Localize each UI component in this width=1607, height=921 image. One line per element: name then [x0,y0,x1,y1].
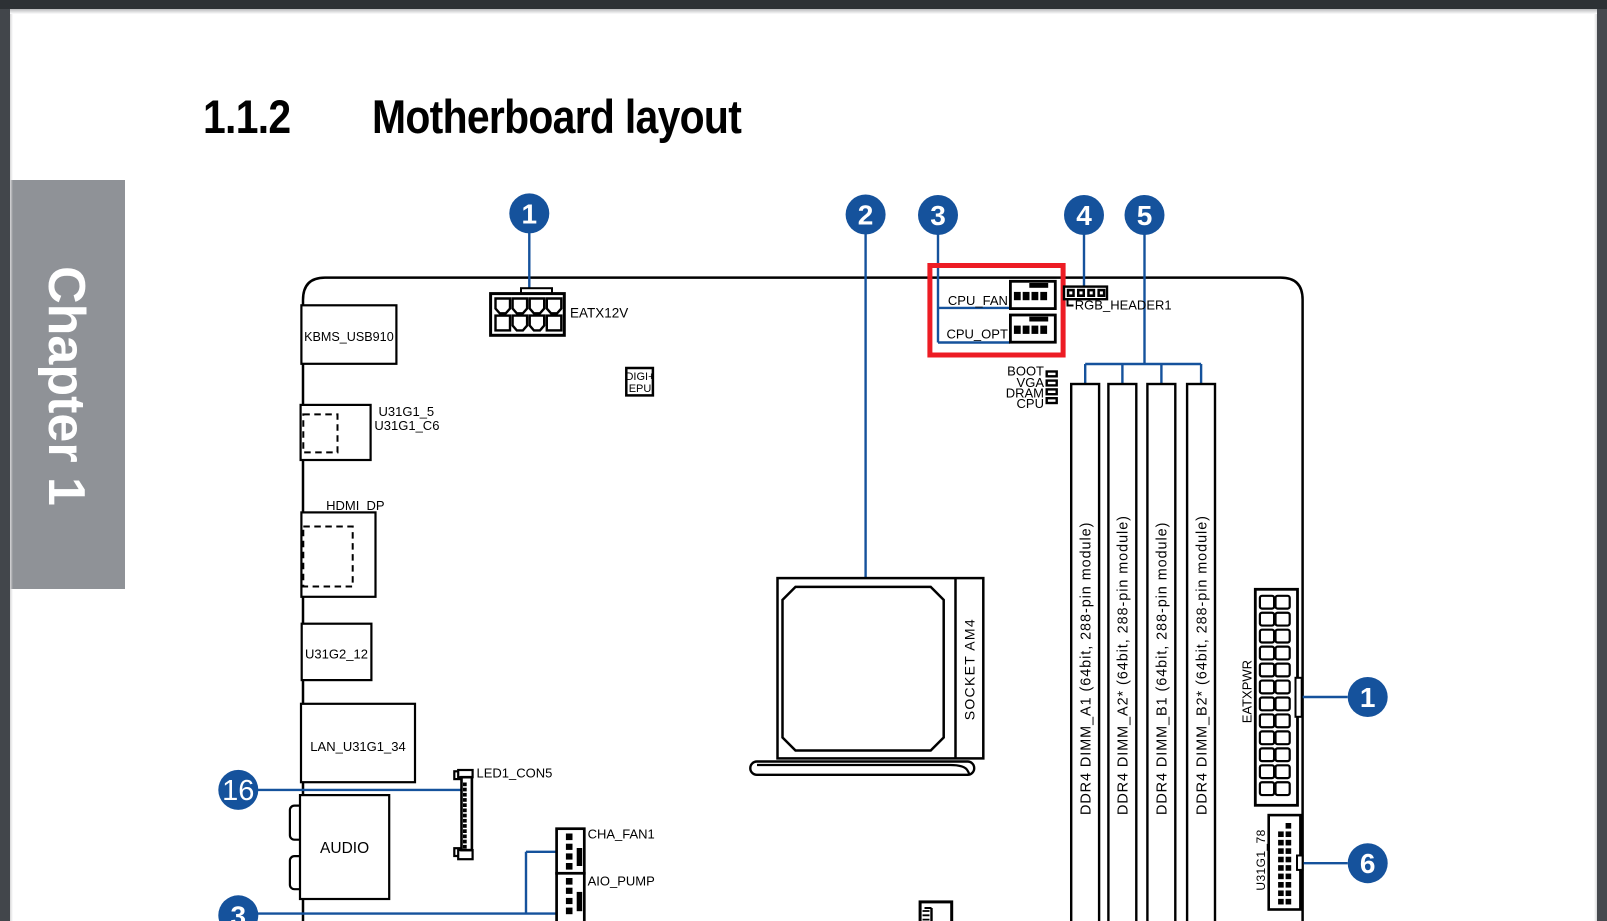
svg-text:RGB_HEADER1: RGB_HEADER1 [1075,298,1172,313]
svg-text:AIO_PUMP: AIO_PUMP [588,874,655,889]
svg-text:CHA_FAN1: CHA_FAN1 [588,827,655,842]
svg-text:2: 2 [858,200,874,231]
svg-text:DDR4 DIMM_A1 (64bit, 288-pin m: DDR4 DIMM_A1 (64bit, 288-pin module) [1079,522,1095,815]
svg-text:1: 1 [522,198,538,229]
svg-text:4: 4 [1076,200,1092,231]
svg-text:CPU: CPU [1017,396,1044,411]
svg-text:EATX12V: EATX12V [570,306,628,321]
svg-text:3: 3 [231,900,247,921]
svg-text:U31G1_5: U31G1_5 [379,404,435,419]
svg-text:EATXPWR: EATXPWR [1240,660,1255,723]
svg-text:3: 3 [930,200,946,231]
svg-text:DDR4 DIMM_B1 (64bit, 288-pin m: DDR4 DIMM_B1 (64bit, 288-pin module) [1155,522,1171,815]
svg-text:6: 6 [1360,848,1376,879]
svg-text:U31G1_C6: U31G1_C6 [374,418,439,433]
svg-text:CPU_FAN: CPU_FAN [948,293,1008,308]
svg-text:DIGI+: DIGI+ [625,371,654,383]
svg-text:EPU: EPU [629,383,652,395]
svg-text:LAN_U31G1_34: LAN_U31G1_34 [310,739,405,754]
svg-text:LED1_CON5: LED1_CON5 [477,766,553,781]
svg-text:KBMS_USB910: KBMS_USB910 [304,330,394,344]
svg-text:CPU_OPT: CPU_OPT [946,326,1007,341]
svg-text:AUDIO: AUDIO [320,840,369,857]
svg-text:HDMI_DP: HDMI_DP [326,498,385,513]
svg-text:1: 1 [1360,682,1376,713]
svg-text:5: 5 [1137,200,1153,231]
svg-text:U31G2_12: U31G2_12 [305,647,368,662]
svg-text:U31G1_78: U31G1_78 [1254,829,1268,890]
svg-text:16: 16 [222,775,254,807]
svg-text:SOCKET AM4: SOCKET AM4 [962,618,978,720]
svg-text:DDR4 DIMM_B2* (64bit, 288-pin: DDR4 DIMM_B2* (64bit, 288-pin module) [1194,515,1210,815]
svg-text:DDR4 DIMM_A2* (64bit, 288-pin: DDR4 DIMM_A2* (64bit, 288-pin module) [1116,515,1132,815]
